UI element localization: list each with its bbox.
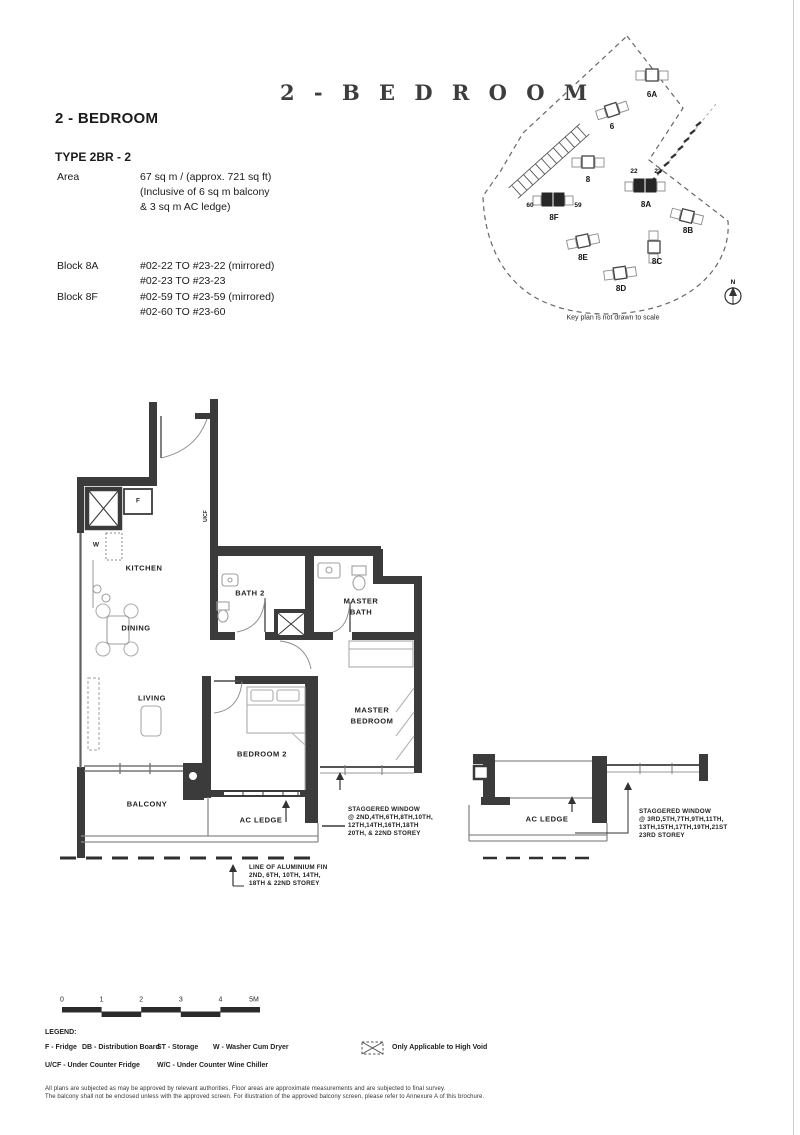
room-label-kitchen: KITCHEN — [126, 564, 163, 573]
room-label-dining: DINING — [121, 624, 150, 633]
bedroom2-door — [214, 681, 242, 713]
room-label-master-bath-1: MASTER — [344, 597, 379, 606]
legend-wc: W/C - Under Counter Wine Chiller — [157, 1062, 268, 1069]
scale-tick-4: 4 — [218, 997, 222, 1004]
living-furniture-icon — [88, 678, 161, 750]
building-8b — [670, 206, 704, 225]
room-label-master-bath-2: BATH — [350, 608, 372, 617]
area-label: Area — [57, 170, 79, 185]
building-8f-highlighted — [533, 193, 573, 206]
area-line-3: & 3 sq m AC ledge) — [140, 200, 230, 215]
building-label-8b: 8B — [683, 226, 693, 235]
block-8f-units-1: #02-59 TO #23-59 (mirrored) — [140, 290, 274, 305]
building-6a — [636, 69, 668, 81]
master-bath-fixtures-icon — [318, 563, 366, 590]
room-label-bedroom2: BEDROOM 2 — [237, 750, 287, 759]
building-label-6: 6 — [610, 122, 615, 131]
bath2-door — [237, 598, 265, 632]
building-label-8c: 8C — [652, 257, 662, 266]
building-label-8e: 8E — [578, 253, 588, 262]
keyplan-graphic: 6A 6 8 8A 8F 8B 8E 8C 8D 22 23 60 59 N — [483, 36, 741, 314]
disclaimer-line-1: All plans are subjected as may be approv… — [45, 1086, 445, 1092]
staggered-window-note-high: STAGGERED WINDOW @ 3RD,5TH,7TH,9TH,11TH,… — [639, 808, 727, 840]
high-void-legend-icon — [362, 1042, 383, 1054]
block-8a-units-1: #02-22 TO #23-22 (mirrored) — [140, 259, 274, 274]
scale-tick-0: 0 — [60, 997, 64, 1004]
unit-label-23: 23 — [654, 168, 662, 175]
room-label-master-bedroom-1: MASTER — [355, 706, 390, 715]
block-8f-label: Block 8F — [57, 290, 98, 305]
master-bath-door — [333, 602, 350, 632]
washer-label: W — [93, 542, 99, 549]
room-label-bath2: BATH 2 — [235, 589, 265, 598]
block-8a-label: Block 8A — [57, 259, 98, 274]
detail-label-ac-ledge: AC LEDGE — [526, 815, 569, 824]
area-line-1: 67 sq m / (approx. 721 sq ft) — [140, 170, 271, 185]
master-window-arrow — [336, 772, 344, 790]
unit-label-60: 60 — [526, 202, 534, 209]
room-label-ac-ledge: AC LEDGE — [240, 816, 283, 825]
bath2-fixtures-icon — [217, 574, 238, 622]
master-bed-icon — [349, 641, 414, 760]
unit-label-59: 59 — [574, 202, 582, 209]
building-6 — [595, 99, 629, 120]
building-label-6a: 6A — [647, 90, 657, 99]
north-compass-icon: N — [725, 279, 741, 305]
fridge-label: F — [136, 498, 140, 505]
scale-tick-3: 3 — [179, 997, 183, 1004]
kitchen-hob-icon — [93, 560, 110, 608]
building-label-8a: 8A — [641, 200, 651, 209]
building-label-8d: 8D — [616, 284, 626, 293]
staggered-window-note-low: STAGGERED WINDOW @ 2ND,4TH,6TH,8TH,10TH,… — [348, 806, 433, 838]
legend-washer: W - Washer Cum Dryer — [213, 1044, 289, 1051]
area-line-2: (Inclusive of 6 sq m balcony — [140, 185, 270, 200]
room-label-living: LIVING — [138, 694, 166, 703]
ucf-label: U/CF — [203, 510, 209, 522]
building-8e — [566, 232, 600, 250]
entry-door — [161, 416, 207, 458]
building-label-8f: 8F — [549, 213, 558, 222]
scale-tick-1: 1 — [100, 997, 104, 1004]
alum-fin-note: LINE OF ALUMINIUM FIN 2ND, 6TH, 10TH, 14… — [249, 864, 327, 888]
building-label-8: 8 — [586, 175, 591, 184]
keyplan-caption: Key plan is not drawn to scale — [567, 315, 660, 322]
high-void-shaft-kitchen-icon — [87, 489, 120, 528]
scale-bar — [62, 1007, 260, 1017]
room-label-master-bedroom-2: BEDROOM — [351, 717, 394, 726]
high-void-shaft-bath-icon — [276, 611, 306, 637]
washer-outline — [106, 533, 122, 560]
disclaimer-line-2: The balcony shall not be enclosed unless… — [45, 1094, 484, 1100]
scale-tick-5m: 5M — [249, 997, 259, 1004]
legend-db: DB - Distribution Board — [82, 1044, 160, 1051]
page-title: 2 - B E D R O O M — [280, 80, 593, 105]
unit-label-22: 22 — [630, 168, 638, 175]
legend-title: LEGEND: — [45, 1029, 77, 1036]
block-8a-units-2: #02-23 TO #23-23 — [140, 274, 225, 289]
bedroom2-bed-icon — [247, 687, 305, 790]
legend-fridge: F - Fridge — [45, 1044, 77, 1051]
block-8f-units-2: #02-60 TO #23-60 — [140, 305, 225, 320]
room-label-balcony: BALCONY — [127, 800, 168, 809]
scale-tick-2: 2 — [139, 997, 143, 1004]
building-8 — [572, 156, 604, 168]
master-bedroom-door — [280, 641, 311, 669]
legend-high-void: Only Applicable to High Void — [392, 1044, 487, 1051]
ac-ledge-arrow — [282, 800, 290, 822]
ac-ledge-detail-graphic — [469, 754, 708, 858]
building-8a-highlighted — [625, 179, 665, 192]
legend-st: ST - Storage — [157, 1044, 198, 1051]
plan-linework: 6A 6 8 8A 8F 8B 8E 8C 8D 22 23 60 59 N — [0, 0, 800, 1135]
floorplan-page: 6A 6 8 8A 8F 8B 8E 8C 8D 22 23 60 59 N — [0, 0, 800, 1135]
unit-type-label: TYPE 2BR - 2 — [55, 150, 131, 164]
svg-text:N: N — [731, 279, 736, 286]
alum-fin-arrow — [229, 864, 244, 886]
section-title: 2 - BEDROOM — [55, 110, 158, 127]
legend-ucf: U/CF - Under Counter Fridge — [45, 1062, 140, 1069]
building-8d — [603, 265, 636, 281]
